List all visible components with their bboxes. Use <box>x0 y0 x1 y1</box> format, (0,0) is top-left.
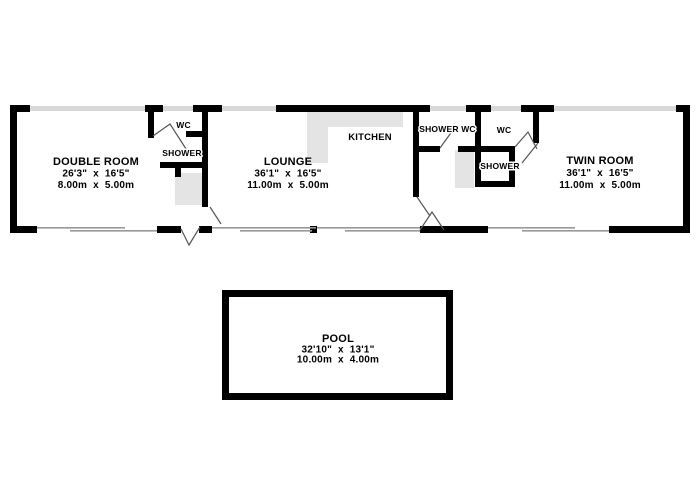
wall-segment <box>148 105 154 138</box>
kitchen-label: KITCHEN <box>348 132 392 143</box>
exterior-wall-left <box>10 105 17 233</box>
wall-segment <box>10 226 37 233</box>
room-labels: DOUBLE ROOM 26'3" x 16'5" 8.00m x 5.00m … <box>53 120 641 191</box>
wall-segment <box>202 105 208 207</box>
windows-bottom <box>37 228 609 231</box>
wall-segment <box>160 162 208 168</box>
shower-tray <box>455 150 474 188</box>
shower-right-label: SHOWER <box>480 161 519 171</box>
twin-room-metric: 11.00m x 5.00m <box>559 180 641 191</box>
shower-left-label: SHOWER <box>162 148 201 158</box>
floorplan-drawing: DOUBLE ROOM 26'3" x 16'5" 8.00m x 5.00m … <box>0 0 700 500</box>
wall-segment <box>609 226 690 233</box>
door-swing <box>417 197 430 216</box>
lounge-metric: 11.00m x 5.00m <box>247 180 329 191</box>
pool-metric: 10.00m x 4.00m <box>297 355 379 366</box>
building: DOUBLE ROOM 26'3" x 16'5" 8.00m x 5.00m … <box>10 105 690 245</box>
shower-wc-label: SHOWER WC <box>419 124 476 134</box>
wall-segment <box>413 105 419 197</box>
wall-segment <box>533 105 539 143</box>
wc-left-label: WC <box>176 120 191 130</box>
wall-segment <box>276 105 430 112</box>
twin-room-imperial: 36'1" x 16'5" <box>566 168 633 179</box>
wall-segment <box>175 168 181 177</box>
double-room-imperial: 26'3" x 16'5" <box>62 169 129 180</box>
exterior-wall-right <box>683 105 690 233</box>
door-swing <box>522 143 538 163</box>
wc-right-label: WC <box>497 125 512 135</box>
lounge-imperial: 36'1" x 16'5" <box>254 169 321 180</box>
shower-tray <box>175 173 203 205</box>
pool-name: POOL <box>322 333 354 345</box>
pool: POOL 32'10" x 13'1" 10.00m x 4.00m <box>226 294 450 397</box>
wall-segment <box>458 146 515 152</box>
double-room-metric: 8.00m x 5.00m <box>58 180 134 191</box>
lounge-name: LOUNGE <box>264 156 312 168</box>
door-swing <box>181 227 200 245</box>
wall-segment <box>157 226 181 233</box>
door-swing <box>210 207 221 224</box>
wall-segment <box>199 226 212 233</box>
wall-segment <box>419 146 440 152</box>
floorplan-canvas: DOUBLE ROOM 26'3" x 16'5" 8.00m x 5.00m … <box>0 0 700 500</box>
wall-segment <box>420 226 488 233</box>
wall-segment <box>475 105 481 187</box>
twin-room-name: TWIN ROOM <box>566 155 633 167</box>
double-room-name: DOUBLE ROOM <box>53 156 139 168</box>
